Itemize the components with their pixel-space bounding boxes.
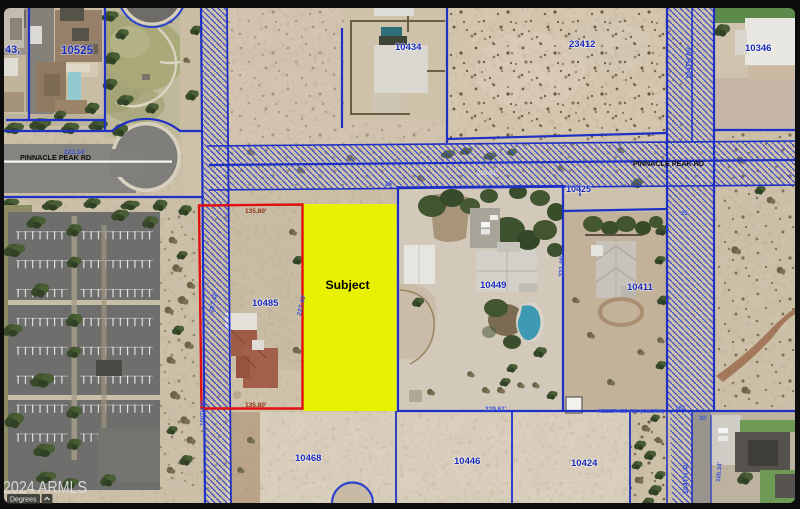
- svg-text:10434: 10434: [395, 42, 422, 53]
- svg-text:10485: 10485: [252, 298, 279, 309]
- svg-text:10468: 10468: [295, 453, 321, 464]
- svg-text:Degrees: Degrees: [10, 497, 37, 504]
- svg-text:135.80': 135.80': [245, 402, 267, 409]
- svg-text:10424: 10424: [571, 458, 598, 469]
- svg-text:10525: 10525: [61, 45, 94, 57]
- svg-text:104TH AV: 104TH AV: [683, 462, 690, 494]
- svg-text:PINNACLE PEAK RD: PINNACLE PEAK RD: [633, 159, 704, 168]
- svg-text:23412: 23412: [569, 39, 595, 50]
- svg-text:10411: 10411: [627, 282, 654, 293]
- svg-text:RESERVED RW (G&SRM): RESERVED RW (G&SRM): [598, 409, 665, 415]
- svg-text:100TH PL: 100TH PL: [200, 398, 207, 426]
- svg-text:226.61': 226.61': [477, 170, 497, 177]
- svg-text:229.61': 229.61': [485, 406, 507, 413]
- svg-text:331.46': 331.46': [558, 255, 566, 277]
- svg-text:10425: 10425: [566, 184, 591, 194]
- svg-text:25': 25': [385, 182, 394, 188]
- svg-text:10449: 10449: [480, 280, 506, 291]
- svg-text:Subject: Subject: [325, 278, 369, 292]
- svg-text:104TH AV: 104TH AV: [686, 47, 693, 79]
- svg-text:25: 25: [681, 211, 688, 217]
- svg-text:10446: 10446: [454, 456, 480, 467]
- svg-text:43,: 43,: [5, 44, 20, 56]
- svg-text:162: 162: [675, 406, 686, 412]
- svg-text:135.80': 135.80': [245, 208, 267, 215]
- svg-text:30': 30': [699, 416, 708, 422]
- svg-text:PINNACLE PEAK RD: PINNACLE PEAK RD: [20, 153, 91, 162]
- svg-text:10346: 10346: [745, 43, 771, 54]
